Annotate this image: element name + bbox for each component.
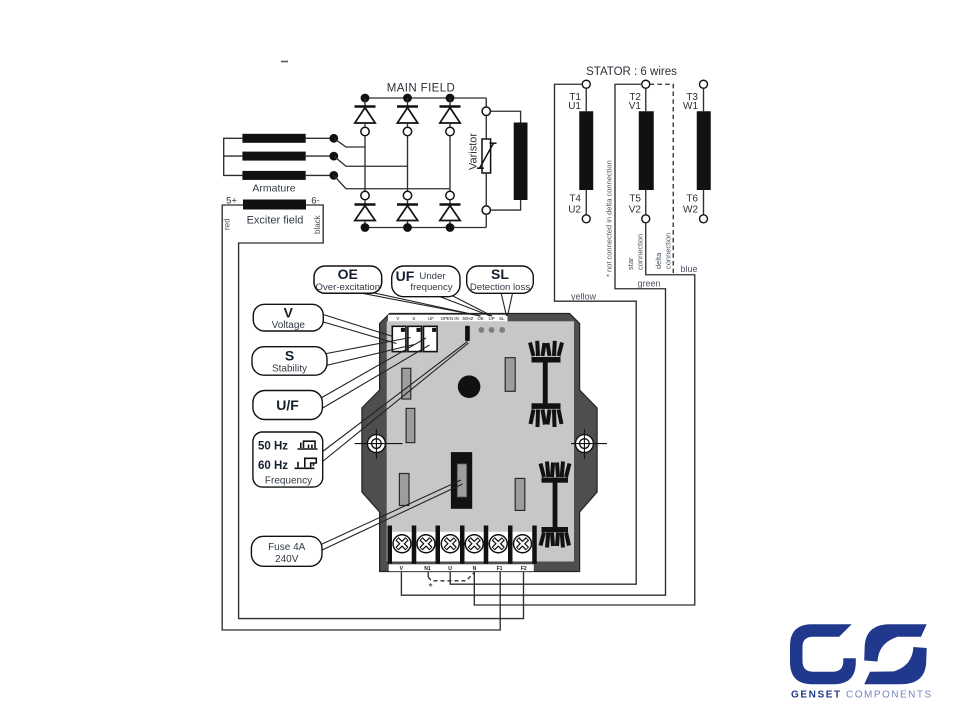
svg-text:*: * [429, 582, 433, 593]
svg-text:W2: W2 [683, 205, 698, 216]
svg-text:Voltage: Voltage [272, 320, 306, 331]
svg-text:star: star [626, 257, 635, 270]
svg-text:F2: F2 [521, 566, 527, 572]
svg-text:yellow: yellow [571, 292, 597, 302]
svg-text:T5: T5 [629, 194, 641, 205]
svg-text:V1: V1 [629, 101, 642, 112]
svg-text:50 Hz: 50 Hz [258, 441, 288, 453]
svg-text:GENSET: GENSET [791, 690, 842, 701]
svg-text:T6: T6 [686, 194, 698, 205]
svg-text:UP: UP [489, 316, 495, 321]
svg-text:60 Hz: 60 Hz [258, 460, 288, 472]
svg-text:Armature: Armature [252, 183, 295, 195]
svg-text:S: S [412, 316, 415, 321]
svg-text:UF: UF [428, 316, 434, 321]
svg-text:SL: SL [491, 266, 509, 282]
svg-text:STATOR : 6 wires: STATOR : 6 wires [586, 66, 677, 78]
svg-text:delta: delta [654, 252, 663, 269]
svg-text:240V: 240V [275, 554, 299, 565]
svg-text:* not connected in delta conne: * not connected in delta connection [605, 160, 614, 277]
svg-text:OE: OE [477, 316, 483, 321]
svg-text:Detection loss: Detection loss [470, 282, 530, 293]
svg-text:SL: SL [499, 316, 505, 321]
svg-text:Under: Under [419, 271, 446, 282]
svg-text:U: U [448, 566, 452, 572]
svg-text:OPEN IN: OPEN IN [441, 316, 459, 321]
svg-text:N: N [473, 566, 477, 572]
svg-text:connection: connection [636, 234, 645, 270]
svg-text:connection: connection [664, 233, 673, 269]
svg-text:red: red [223, 218, 232, 230]
svg-text:Over-excitation: Over-excitation [316, 282, 381, 293]
svg-text:Exciter field: Exciter field [247, 215, 304, 227]
svg-text:T4: T4 [569, 194, 581, 205]
svg-text:COMPONENTS: COMPONENTS [846, 690, 933, 701]
svg-text:W1: W1 [683, 101, 698, 112]
svg-text:Varistor: Varistor [468, 133, 480, 170]
svg-text:Frequency: Frequency [265, 476, 312, 487]
svg-text:MAIN FIELD: MAIN FIELD [387, 83, 456, 95]
svg-text:U/F: U/F [276, 397, 299, 413]
svg-text:Fuse 4A: Fuse 4A [268, 542, 306, 553]
svg-text:blue: blue [681, 264, 698, 274]
svg-text:OE: OE [338, 266, 358, 282]
svg-text:60HZ: 60HZ [463, 316, 474, 321]
svg-text:Stability: Stability [272, 364, 307, 375]
svg-text:black: black [313, 214, 322, 234]
svg-text:green: green [638, 279, 661, 289]
svg-text:frequency: frequency [410, 282, 452, 293]
svg-text:V: V [396, 316, 399, 321]
svg-text:V: V [284, 305, 294, 321]
svg-text:S: S [285, 348, 294, 364]
svg-text:N1: N1 [424, 566, 431, 572]
svg-text:U2: U2 [568, 205, 581, 216]
svg-text:V2: V2 [629, 205, 642, 216]
svg-text:F1: F1 [497, 566, 503, 572]
svg-text:U1: U1 [568, 101, 581, 112]
